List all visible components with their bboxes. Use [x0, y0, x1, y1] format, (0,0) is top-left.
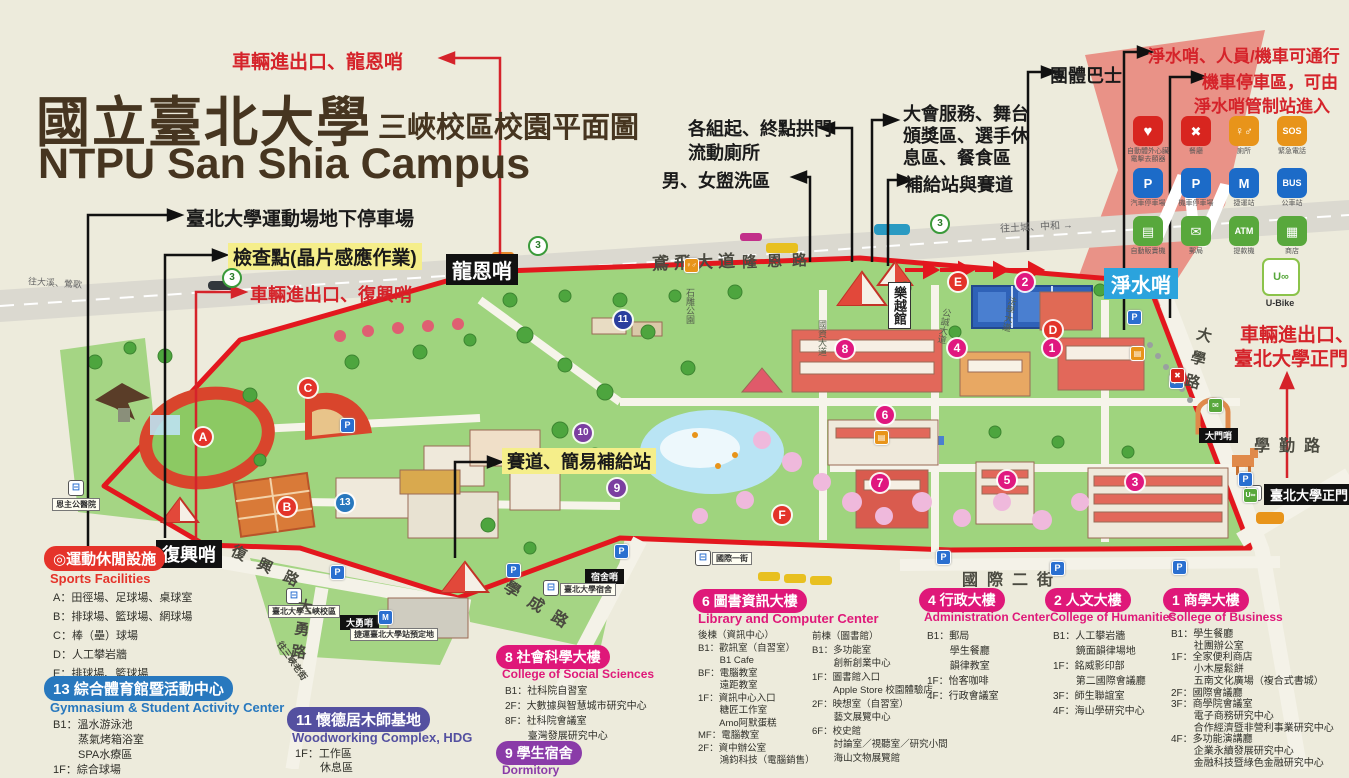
parking-icon: P: [1238, 472, 1253, 487]
list-item: B1：人工攀岩牆: [1053, 629, 1146, 644]
section-hdg11-items: 1F：工作區 休息區: [295, 747, 353, 775]
road-stone-park: 石雕公園: [684, 288, 697, 324]
route-3-marker: 3: [528, 236, 548, 256]
section-biz1-title: 1 商學大樓: [1163, 588, 1249, 612]
post-office-icon: ✉: [1208, 398, 1223, 413]
sos-phone-icon: SOS: [1277, 116, 1307, 146]
list-item: 合作經濟暨非營利事業研究中心: [1171, 723, 1334, 735]
page-title-en: NTPU San Shia Campus: [38, 140, 530, 189]
section-sports-title: ◎運動休閒設施: [44, 546, 165, 571]
legend-label: 餐廳: [1172, 148, 1220, 156]
marker-10: 10: [574, 424, 592, 442]
list-item: 藝文展覽中心: [812, 711, 948, 725]
list-item: B1：溫水游泳池: [53, 718, 144, 733]
section-dorm9-title: 9 學生宿舍: [496, 741, 582, 765]
section-biz1-items: B1：學生餐廳 社團辦公室1F：全家便利商店 小木屋鬆餅 五南文化廣場（複合式書…: [1171, 629, 1334, 769]
section-social8-items: B1：社科院自習室2F：大數據與智慧城市研究中心8F：社科院會議室 臺灣發展研究…: [505, 684, 647, 744]
annotation-service-3: 息區、餐食區: [903, 144, 1011, 170]
list-item: 1F：銘威影印部: [1053, 659, 1146, 674]
restroom-icon: ♀♂: [684, 258, 699, 273]
section-library6-title: 6 圖書資訊大樓: [693, 589, 807, 613]
annotation-main-gate-1: 車輛進出口、: [1240, 320, 1349, 347]
list-item: 遠距教室: [698, 680, 815, 693]
post-fuxing: 復興哨: [156, 540, 222, 568]
annotation-moto-1: 機車停車區，可由: [1202, 68, 1338, 93]
section-social8-title: 8 社會科學大樓: [496, 645, 610, 669]
marker-6: 6: [876, 406, 894, 424]
list-item: B1：郵局: [927, 629, 999, 644]
list-item: B：排球場、籃球場、網球場: [53, 608, 192, 627]
mrt-legend-icon: M: [1229, 168, 1259, 198]
annotation-jingshui-pass: 淨水哨、人員/機車可通行: [1148, 42, 1340, 67]
list-item: B1：社科院自習室: [505, 684, 647, 699]
vending-icon: ▤: [1130, 346, 1145, 361]
list-item: MF：電腦教室: [698, 730, 815, 743]
list-item: 鴻鈞科技（電腦銷售）: [698, 755, 815, 768]
stop-dorm: 臺北大學宿舍: [560, 583, 616, 596]
annotation-arch: 各組起、終點拱門: [688, 115, 832, 141]
parking-icon: P: [506, 563, 521, 578]
list-item: 2F：國際會議廳: [1171, 688, 1334, 700]
road-xueqin: 學勤路: [1254, 432, 1329, 456]
marker-13: 13: [336, 494, 354, 512]
shop-icon: ▦: [1277, 216, 1307, 246]
list-item: B1：歡訊室（自習室）: [698, 643, 815, 656]
legend-label: 郵局: [1172, 248, 1220, 256]
list-item: 第二國際會議廳: [1053, 674, 1146, 689]
list-item: 企業永續發展研究中心: [1171, 746, 1334, 758]
annotation-washroom: 男、女盥洗區: [662, 167, 770, 193]
list-item: 2F：大數據與智慧城市研究中心: [505, 699, 647, 714]
annotation-gate-longen: 車輛進出口、龍恩哨: [232, 47, 403, 74]
annotation-group-bus: 團體巴士: [1050, 62, 1122, 88]
marker-1: 1: [1043, 339, 1061, 357]
list-item: 學生餐廳: [927, 644, 999, 659]
section-hum2-items: B1：人工攀岩牆 鏡面韻律場地1F：銘威影印部 第二國際會議廳3F：師生聯誼室4…: [1053, 629, 1146, 719]
list-item: Amo阿默蛋糕: [698, 718, 815, 731]
parking-icon: P: [1050, 561, 1065, 576]
route-3-marker: 3: [222, 268, 242, 288]
campus-map-page: { "title": {"zh": "國立臺北大學", "zh2": "三峽校區…: [0, 0, 1349, 769]
list-item: 討論室／視聽室／研究小間: [812, 738, 948, 752]
bus-stop-icon-enzhugong: ⊟: [68, 480, 84, 496]
annotation-arch2: 流動廁所: [688, 139, 760, 165]
road-guozi: 國資大道: [816, 320, 829, 356]
ubike-station-icon: U∞: [1243, 488, 1258, 503]
list-item: 電子商務研究中心: [1171, 711, 1334, 723]
list-item: 金融科技暨綠色金融研究中心: [1171, 758, 1334, 770]
marker-4: 4: [948, 339, 966, 357]
marker-8: 8: [836, 340, 854, 358]
section-gym13-title: 13 綜合體育館暨活動中心: [44, 676, 233, 701]
vending-icon: ▤: [874, 430, 889, 445]
post-longen: 龍恩哨: [446, 254, 518, 285]
legend-label: 商店: [1268, 248, 1316, 256]
list-item: 4F：海山學研究中心: [1053, 704, 1146, 719]
list-item: 3F：商學院會議室: [1171, 699, 1334, 711]
road-longen: 隆恩路: [742, 249, 818, 273]
mrt-planned-label: 捷運臺北大學站預定地: [350, 628, 438, 641]
legend-label: 自動販賣機: [1124, 248, 1172, 256]
marker-9: 9: [608, 479, 626, 497]
car-parking-icon: P: [1133, 168, 1163, 198]
section-dorm9-subtitle: Dormitory: [502, 763, 559, 777]
section-sports-subtitle: Sports Facilities: [50, 571, 150, 586]
list-item: C：棒（壘）球場: [53, 627, 192, 646]
section-gym13-items: B1：溫水游泳池 蒸氣烤箱浴室 SPA水療區1F：綜合球場: [53, 718, 144, 778]
road-intl2: 國際二街: [962, 566, 1062, 590]
post-office-legend-icon: ✉: [1181, 216, 1211, 246]
list-item: 小木屋鬆餅: [1171, 664, 1334, 676]
stop-intl: 國際一街: [712, 552, 752, 565]
section-admin4-title: 4 行政大樓: [919, 588, 1005, 612]
list-item: 韻律教室: [927, 659, 999, 674]
list-item: 1F：怡客咖啡: [927, 674, 999, 689]
restaurant-legend-icon: ✖: [1181, 116, 1211, 146]
restaurant-icon: ✖: [1170, 368, 1185, 383]
marker-F: F: [773, 506, 791, 524]
section-social8-subtitle: College of Social Sciences: [502, 667, 654, 681]
annotation-checkpoint: 檢查點(晶片感應作業): [228, 243, 422, 270]
annotation-racetrack: 賽道、簡易補給站: [502, 448, 656, 474]
list-item: 五南文化廣場（複合式書城）: [1171, 676, 1334, 688]
list-item: 糖匠工作室: [698, 705, 815, 718]
list-item: 後棟（資訊中心）: [698, 630, 815, 643]
section-biz1-subtitle: College of Business: [1168, 610, 1283, 624]
section-gym13-subtitle: Gymnasium & Student Activity Center: [50, 700, 284, 715]
list-item: 6F：校史館: [812, 725, 948, 739]
legend-label: 機車停車場: [1172, 200, 1220, 208]
list-item: 4F：多功能演講廳: [1171, 734, 1334, 746]
marker-A: A: [194, 428, 212, 446]
list-item: B1 Cafe: [698, 655, 815, 668]
ubike-icon: U∞: [1262, 258, 1300, 296]
legend-label: 提款機: [1220, 248, 1268, 256]
post-damen: 大門哨: [1199, 428, 1238, 443]
legend-label: 汽車停車場: [1124, 200, 1172, 208]
vending-legend-icon: ▤: [1133, 216, 1163, 246]
marker-B: B: [278, 498, 296, 516]
section-library6-left: 後棟（資訊中心）B1：歡訊室（自習室） B1 CafeBF：電腦教室 遠距教室1…: [698, 630, 815, 768]
section-hum2-title: 2 人文大樓: [1045, 588, 1131, 612]
legend-label: 捷運站: [1220, 200, 1268, 208]
section-library6-subtitle: Library and Computer Center: [698, 611, 879, 626]
parking-icon: P: [936, 550, 951, 565]
section-hdg11-subtitle: Woodworking Complex, HDG: [292, 730, 472, 745]
list-item: BF：電腦教室: [698, 668, 815, 681]
legend-label: 廁所: [1220, 148, 1268, 156]
list-item: SPA水療區: [53, 748, 144, 763]
section-hum2-subtitle: College of Humanities: [1050, 610, 1176, 624]
marker-7: 7: [871, 474, 889, 492]
list-item: 休息區: [295, 761, 353, 775]
annotation-moto-2: 淨水哨管制站進入: [1194, 92, 1330, 117]
aed-icon: ♥: [1133, 116, 1163, 146]
marker-5: 5: [998, 471, 1016, 489]
annotation-gate-fuxing: 車輛進出口、復興哨: [250, 281, 412, 307]
list-item: 2F：資中辦公室: [698, 743, 815, 756]
moto-parking-icon: P: [1181, 168, 1211, 198]
stop-main-gate: 臺北大學正門: [1264, 484, 1349, 505]
marker-E: E: [949, 273, 967, 291]
list-item: 8F：社科院會議室: [505, 714, 647, 729]
section-admin4-items: B1：郵局 學生餐廳 韻律教室1F：怡客咖啡4F：行政會議室: [927, 629, 999, 704]
marker-C: C: [299, 379, 317, 397]
mrt-icon: M: [378, 610, 393, 625]
annotation-main-gate-2: 臺北大學正門: [1234, 344, 1348, 371]
list-item: 1F：全家便利商店: [1171, 652, 1334, 664]
section-admin4-subtitle: Administration Center: [924, 610, 1050, 624]
list-item: A：田徑場、足球場、桌球室: [53, 589, 192, 608]
marker-2: 2: [1016, 273, 1034, 291]
marker-D: D: [1044, 321, 1062, 339]
bus-stop-icon-intl: ⊟: [695, 550, 711, 566]
parking-icon: P: [1127, 310, 1142, 325]
list-item: 蒸氣烤箱浴室: [53, 733, 144, 748]
marker-11: 11: [614, 311, 632, 329]
legend-label: 緊急電話: [1268, 148, 1316, 156]
post-dorm: 宿舍哨: [585, 569, 624, 584]
list-item: 社團辦公室: [1171, 641, 1334, 653]
annotation-sports-parking: 臺北大學運動場地下停車場: [186, 204, 414, 231]
list-item: 1F：工作區: [295, 747, 353, 761]
restroom-legend-icon: ♀♂: [1229, 116, 1259, 146]
list-item: 海山文物展覽館: [812, 752, 948, 766]
post-jingshui: 淨水哨: [1104, 268, 1178, 299]
marker-3: 3: [1126, 473, 1144, 491]
stop-enzhugong: 恩主公醫院: [52, 498, 100, 511]
list-item: D：人工攀岩牆: [53, 646, 192, 665]
route-3-marker: 3: [930, 214, 950, 234]
list-item: B1：學生餐廳: [1171, 629, 1334, 641]
bus-stop-legend-icon: BUS: [1277, 168, 1307, 198]
atm-icon: ATM: [1229, 216, 1259, 246]
legend-label: 自動體外心臟 電擊去顫器: [1124, 148, 1172, 164]
parking-icon: P: [1172, 560, 1187, 575]
list-item: 1F：資訊中心入口: [698, 693, 815, 706]
section-hdg11-title: 11 懷德居木師基地: [287, 707, 430, 732]
legend-label: 公車站: [1268, 200, 1316, 208]
annotation-supply: 補給站與賽道: [905, 171, 1013, 197]
list-item: 3F：師生聯誼室: [1053, 689, 1146, 704]
leyue-hall-label: 樂越館: [888, 282, 911, 329]
parking-icon: P: [340, 418, 355, 433]
ubike-label: U-Bike: [1256, 298, 1304, 308]
list-item: 鏡面韻律場地: [1053, 644, 1146, 659]
list-item: 4F：行政會議室: [927, 689, 999, 704]
parking-icon: P: [330, 565, 345, 580]
parking-icon: P: [614, 544, 629, 559]
list-item: 1F：綜合球場: [53, 763, 144, 778]
